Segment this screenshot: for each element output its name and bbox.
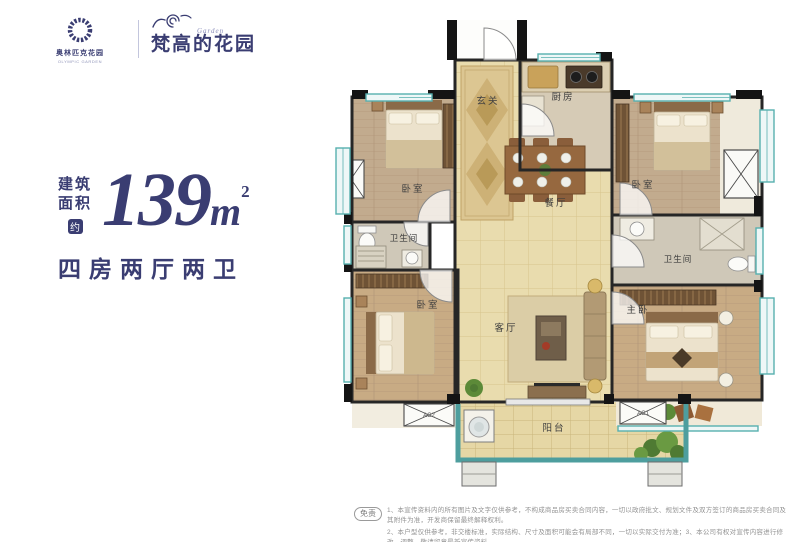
area-unit: m — [210, 189, 241, 234]
label-bath-right: 卫生间 — [664, 254, 693, 264]
label-bath-left: 卫生间 — [390, 233, 419, 243]
shaft-right — [724, 150, 758, 198]
label-kitchen: 厨房 — [551, 91, 574, 103]
area-value: 139m2 — [102, 166, 250, 234]
disclaimer-badge: 免责 — [354, 507, 382, 521]
area-label-bottom: 面积 — [58, 195, 92, 214]
ac-right-label: AC1 — [637, 411, 649, 417]
area-number: 139 — [102, 158, 210, 242]
developer-logo-text: 奥林匹克花园 — [56, 48, 104, 58]
label-bedroom-top-left: 卧室 — [401, 183, 424, 195]
project-logo: Garden 梵高的花园 — [151, 16, 256, 56]
developer-logo: 奥林匹克花园 OLYMPIC GARDEN — [34, 16, 126, 64]
entry-rug — [461, 66, 513, 220]
label-entry: 玄关 — [476, 95, 499, 107]
ac-platform-left: AC2 — [404, 404, 454, 426]
project-name: 梵高的花园 — [151, 35, 256, 56]
label-balcony: 阳台 — [542, 422, 565, 434]
area-label: 建筑 面积 约 — [58, 176, 92, 234]
label-bedroom-top-right: 卧室 — [631, 179, 654, 191]
label-dining: 餐厅 — [544, 197, 567, 209]
floorplan: AC2 AC1 — [328, 4, 790, 504]
approx-badge: 约 — [68, 219, 83, 234]
area-info: 建筑 面积 约 139m2 四房两厅两卫 — [58, 166, 308, 284]
label-master: 主卧 — [626, 304, 649, 316]
area-unit-sup: 2 — [241, 182, 250, 201]
cloud-swirl-icon — [151, 12, 193, 35]
disclaimer: 免责 1、本宣传资料内的所有图片及文字仅供参考，不构成商品房买卖合同内容，一切以… — [354, 506, 790, 542]
header-divider — [138, 20, 139, 58]
floorplan-poster: 奥林匹克花园 OLYMPIC GARDEN Garden 梵高的花园 建筑 — [0, 0, 800, 542]
ring-logo-icon — [65, 16, 95, 46]
disclaimer-line-2: 2、本户型仅供参考，非交楼标准，实际结构、尺寸及面积可能会有局部不同，一切以实际… — [387, 528, 790, 542]
label-living: 客厅 — [494, 322, 517, 334]
ac-left-label: AC2 — [423, 413, 435, 419]
brand-header: 奥林匹克花园 OLYMPIC GARDEN Garden 梵高的花园 — [34, 16, 256, 64]
layout-summary: 四房两厅两卫 — [58, 250, 308, 284]
label-bedroom-bottom-left: 卧室 — [416, 299, 439, 311]
disclaimer-line-1: 1、本宣传资料内的所有图片及文字仅供参考，不构成商品房买卖合同内容，一切以政府批… — [387, 506, 790, 526]
developer-logo-subtext: OLYMPIC GARDEN — [58, 59, 102, 64]
balcony-slider-door — [506, 399, 590, 405]
ac-platform-right: AC1 — [620, 402, 666, 424]
area-label-top: 建筑 — [58, 176, 92, 195]
